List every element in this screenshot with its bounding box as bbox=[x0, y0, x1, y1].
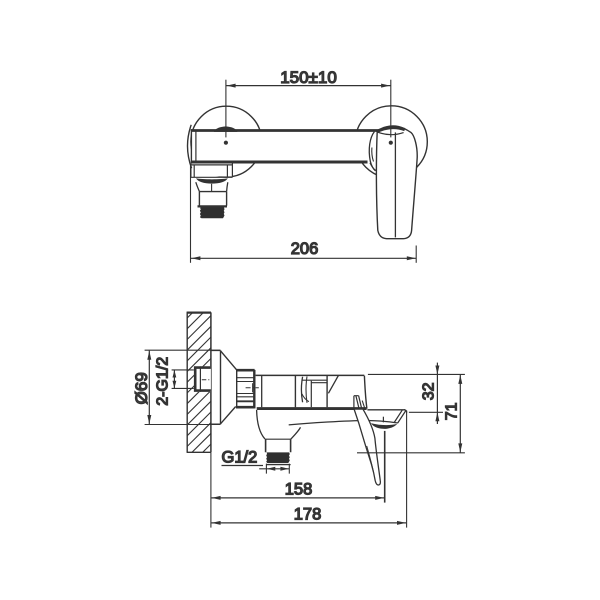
svg-text:2-G1/2: 2-G1/2 bbox=[155, 357, 172, 406]
svg-text:158: 158 bbox=[285, 480, 313, 498]
svg-text:G1/2: G1/2 bbox=[222, 448, 258, 466]
svg-text:178: 178 bbox=[294, 505, 322, 523]
svg-text:32: 32 bbox=[420, 382, 437, 400]
svg-text:71: 71 bbox=[443, 402, 460, 420]
svg-text:206: 206 bbox=[291, 240, 319, 258]
svg-text:Ø69: Ø69 bbox=[132, 372, 151, 404]
svg-text:150±10: 150±10 bbox=[280, 68, 337, 87]
